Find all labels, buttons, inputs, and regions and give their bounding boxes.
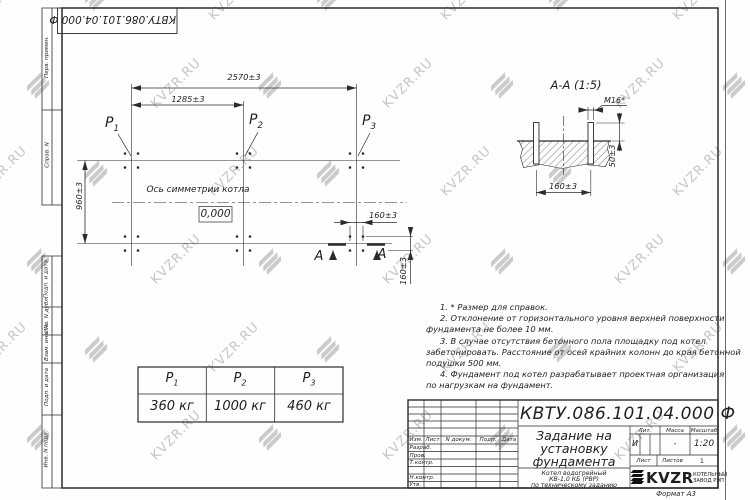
load-point-label-p2: P2 — [249, 112, 263, 131]
anchor-bolt-right — [588, 123, 594, 165]
sheets-value: 1 — [692, 457, 712, 465]
dim-bolt-spacing-h: 160±3 — [364, 210, 402, 220]
note-line: 1. * Размер для справок. — [426, 302, 718, 313]
note-line: забетонировать. Расстояние от осей крайн… — [426, 347, 718, 358]
row-nkontr: Н.контр. — [410, 475, 435, 481]
note-line: по нагрузкам на фундамент. — [426, 380, 718, 391]
kvzr-logo-icon — [632, 469, 643, 486]
dim-half-width: 1285±3 — [158, 94, 218, 104]
dim-bolt-pair-spacing: 160±3 — [543, 181, 583, 191]
col-ndok: N докум. — [441, 437, 476, 443]
section-view-title: А-А (1:5) — [536, 78, 616, 92]
doc-title-line3: фундамента — [518, 454, 630, 469]
doc-designation: КВТУ.086.101.04.000 Ф — [520, 404, 716, 424]
load-point-label-p3: P3 — [362, 113, 376, 132]
format-label: Формат А3 — [640, 490, 712, 498]
scale-label: Масштаб — [690, 428, 718, 434]
product-line3: по техническому заданию — [518, 482, 630, 489]
note-line: 3. В случае отсутствия бетонного пола пл… — [426, 336, 718, 347]
dim-depth: 960±3 — [74, 176, 84, 216]
note-line: 2. Отклонение от горизонтального уровня … — [426, 313, 718, 324]
load-table-header-p2: P2 — [206, 371, 274, 388]
note-line: 4. Фундамент под котел разрабатывает про… — [426, 369, 718, 380]
mass-value: - — [660, 439, 690, 448]
factory-name-line2: ЗАВОД РЭП — [693, 478, 724, 484]
boiler-axis-label: Ось симметрии котла — [143, 185, 253, 195]
col-podp: Подп. — [476, 437, 500, 443]
sheet-label: Лист — [630, 458, 657, 464]
row-utv: Утв. — [410, 482, 422, 488]
load-table-value-p3: 460 кг — [275, 399, 343, 414]
level-mark: 0,000 — [199, 208, 232, 220]
note-line: подушки 500 мм. — [426, 358, 718, 369]
load-table-value-p1: 360 кг — [138, 399, 206, 414]
note-line: фундамента не более 10 мм. — [426, 324, 718, 335]
load-point-label-p1: P1 — [105, 115, 119, 134]
lit-value: И — [630, 439, 640, 448]
dim-total-width: 2570±3 — [214, 72, 274, 82]
logo-text: KVZR — [646, 469, 694, 487]
top-stamp-designation: КВТУ.086.101.04.000 Ф — [59, 13, 176, 25]
load-table-header-p3: P3 — [275, 371, 343, 388]
sidebar-item-perv-primen: Перв. примен. — [44, 6, 50, 108]
load-table-header-p1: P1 — [138, 371, 206, 388]
drawing-sheet: KVZR.RUKVZR.RUKVZR.RUKVZR.RUKVZR.RUKVZR.… — [0, 0, 750, 500]
dim-bolt-height: 50±3 — [607, 136, 617, 176]
scale-value: 1:20 — [690, 439, 718, 449]
anchor-bolt-left — [534, 123, 540, 165]
technical-notes: 1. * Размер для справок. 2. Отклонение о… — [426, 302, 718, 392]
sidebar-item-vzam-inv: Взам. инв. N — [44, 333, 50, 361]
col-izm: Изм. — [408, 437, 424, 443]
dim-bolt-spacing-v: 160±3 — [398, 251, 408, 291]
sidebar-item-podp-data-2: Подп. и дата — [44, 361, 50, 413]
load-table-value-p2: 1000 кг — [206, 399, 274, 414]
sheets-label: Листов — [662, 458, 683, 464]
row-tkontr: Т.контр. — [410, 460, 434, 466]
sidebar-item-sprav-n: Справ. N — [45, 108, 51, 203]
row-prov: Пров. — [410, 453, 426, 459]
col-data: Дата — [500, 437, 518, 443]
sidebar-item-inv-podl: Инв. N подл. — [44, 413, 50, 486]
section-letter-left: А — [312, 249, 326, 264]
section-letter-right: А — [375, 247, 389, 262]
dim-thread: М16* — [604, 96, 625, 105]
concrete-foundation — [519, 141, 610, 169]
lit-label: Лит. — [630, 428, 660, 434]
anchor-bolt-dots — [124, 152, 365, 252]
col-list: Лист — [424, 437, 441, 443]
mass-label: Масса — [660, 428, 690, 434]
row-razrab: Разраб. — [410, 445, 432, 451]
